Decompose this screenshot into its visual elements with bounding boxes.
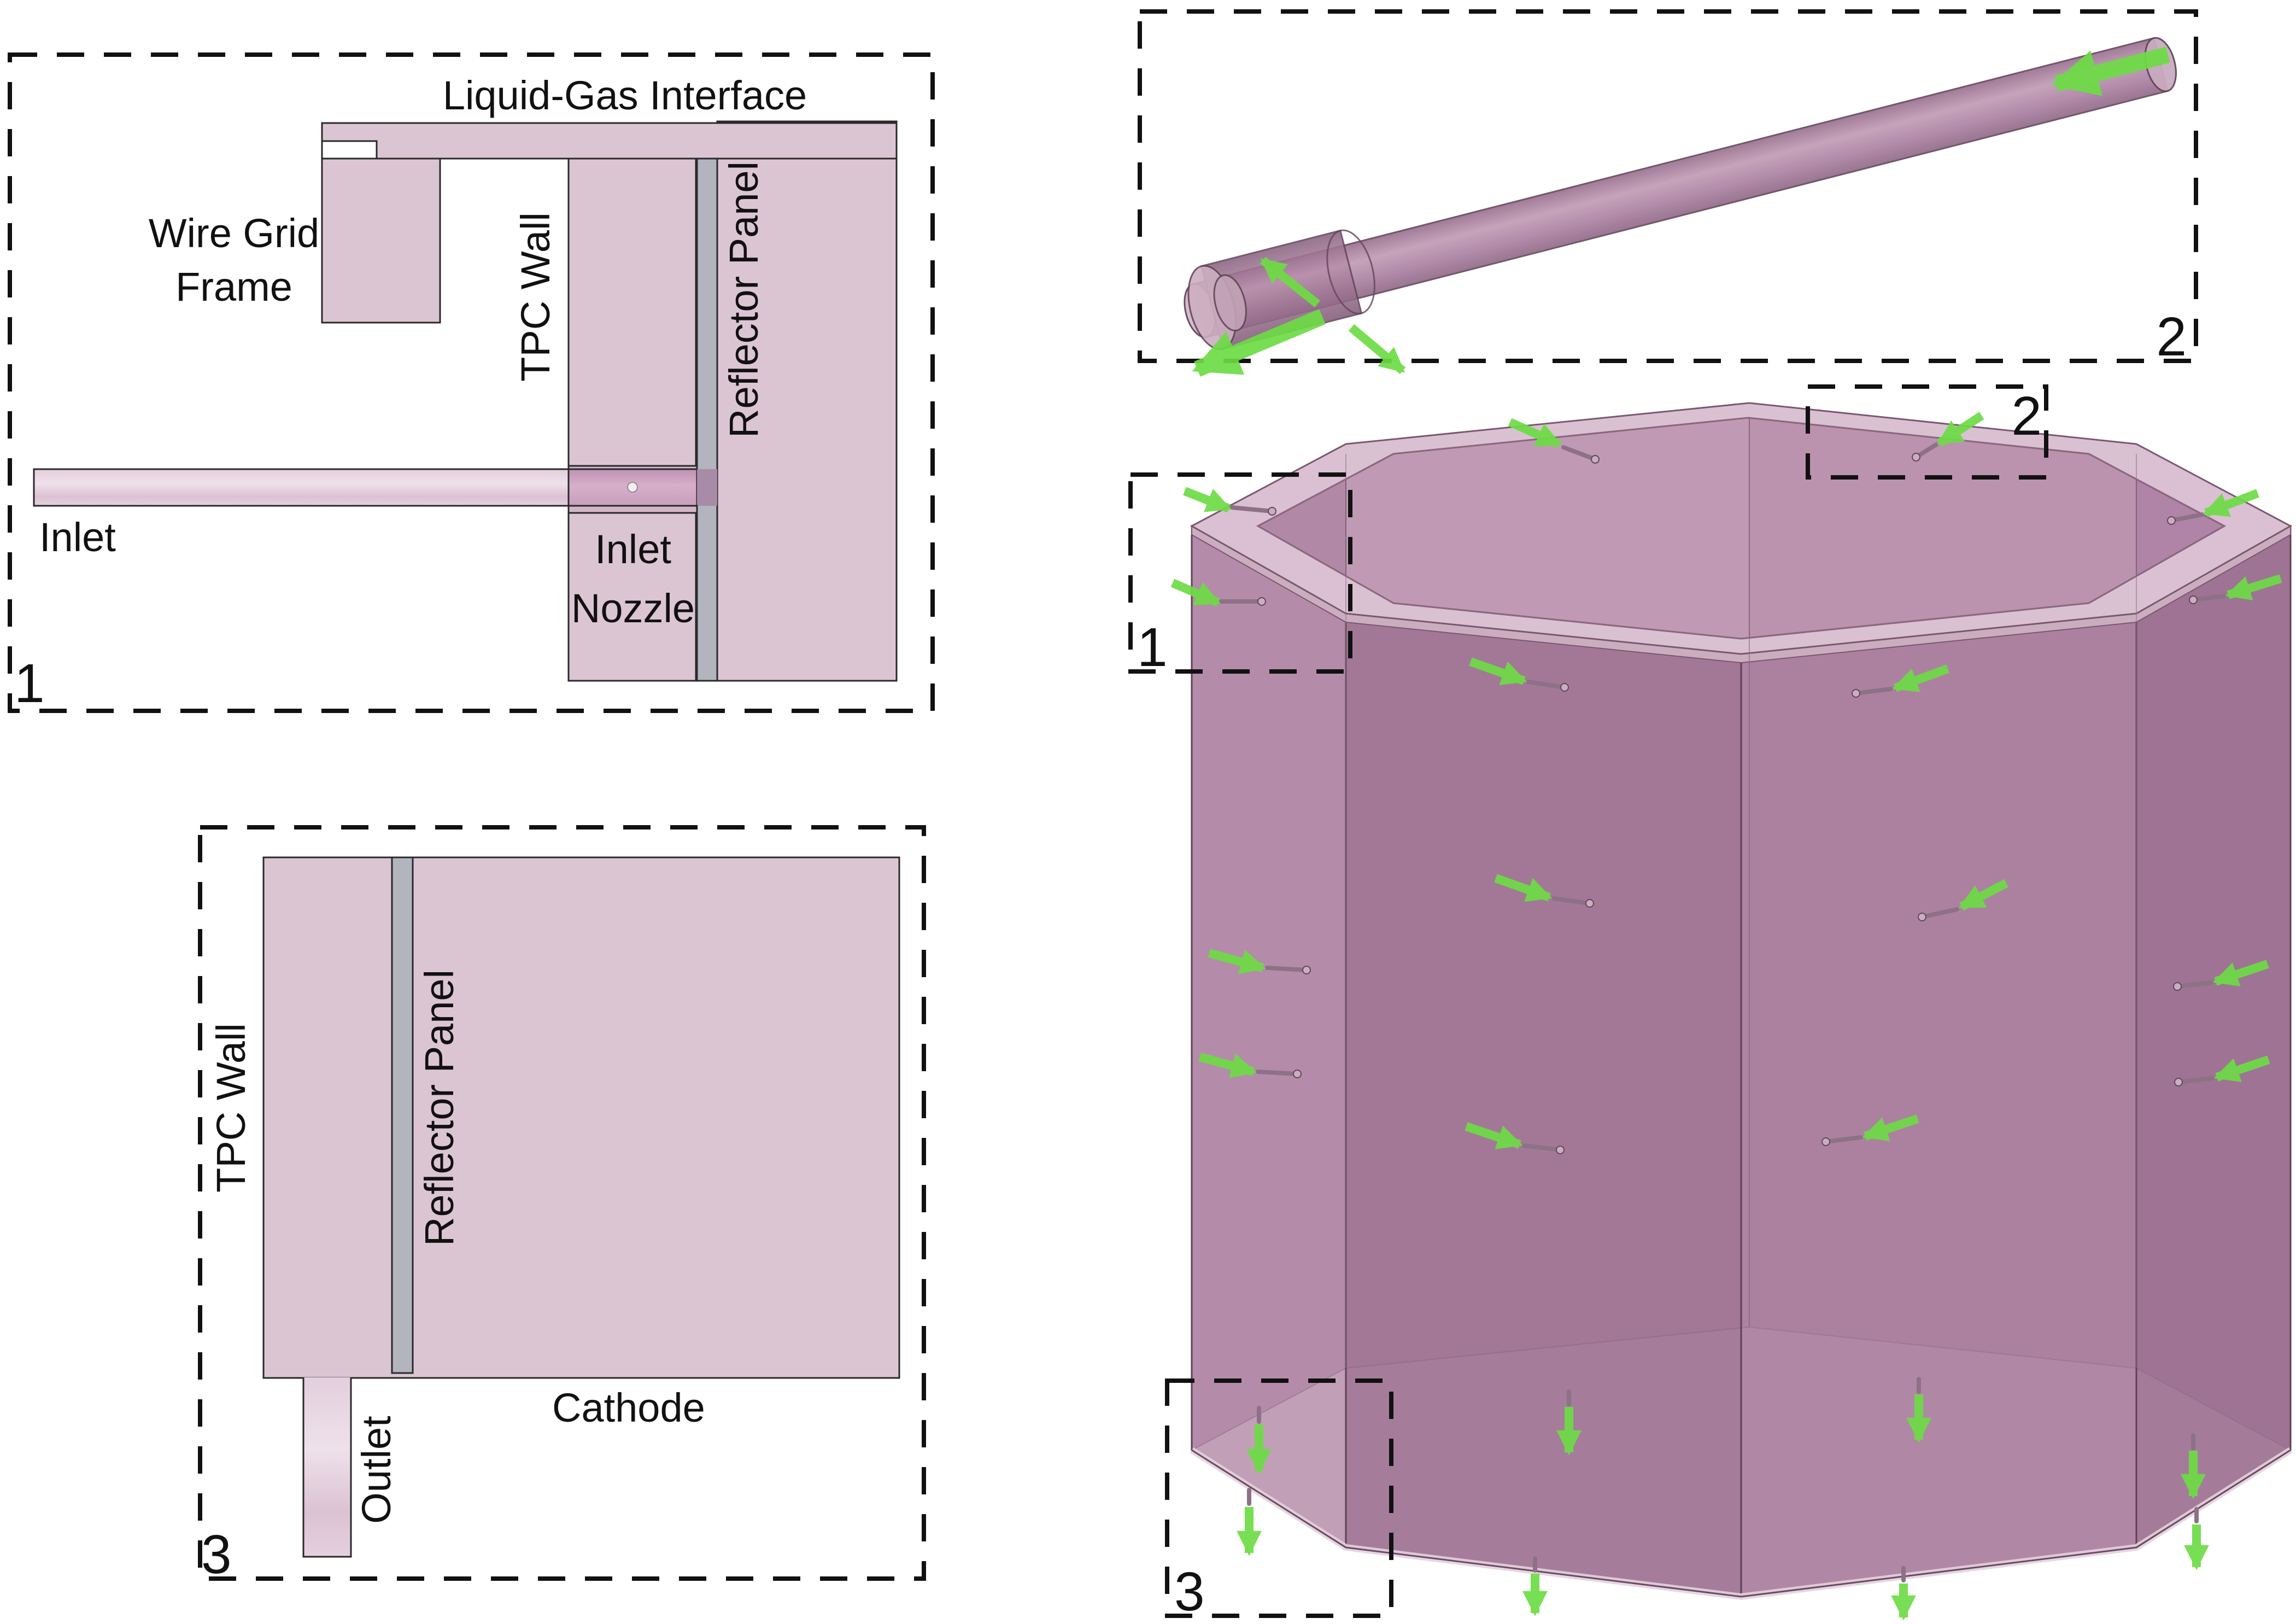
wire-grid-frame-notch [322,141,377,159]
panel-1-inlet-cross-section: Liquid-Gas Interface Wire Grid Frame TPC… [10,55,933,714]
label-inlet-nozzle-line1: Inlet [595,527,671,572]
callout-number-1: 1 [1137,617,1168,678]
label-tpc-wall-p1: TPC Wall [513,212,558,382]
panel-2-nozzle-detail: 2 [1140,11,2196,371]
label-inlet: Inlet [39,515,116,560]
panel-3-outlet-cross-section: TPC Wall Reflector Panel Outlet Cathode … [200,827,924,1585]
cathode-block [263,857,899,1378]
label-tpc-wall-p3: TPC Wall [208,1023,254,1193]
tpc-wall-column-upper [569,159,696,466]
front-wall-b-sw [1346,614,1741,1597]
label-liquid-gas-interface: Liquid-Gas Interface [443,73,807,118]
label-reflector-panel-p3: Reflector Panel [417,969,462,1246]
wire-grid-frame-block [322,159,440,323]
nozzle-pipe-3d [1175,20,2184,355]
panel-2-number: 2 [2156,306,2187,367]
outlet-tube [303,1377,351,1557]
panel-1-number: 1 [14,653,45,714]
front-wall-se-b [1741,614,2136,1597]
main-tpc-octagon-view: 1 2 3 [1131,385,2291,1622]
callout-number-3: 3 [1174,1561,1205,1622]
label-outlet: Outlet [354,1416,399,1524]
flow-arrow-side-down [1351,328,1403,371]
label-wire-grid-frame-line2: Frame [175,264,292,309]
callout-number-2: 2 [2011,385,2042,447]
tpc-geometry-figure: Liquid-Gas Interface Wire Grid Frame TPC… [0,0,2296,1624]
nozzle-orifice-dot [628,482,637,492]
inlet-nozzle-through-reflector [697,469,717,506]
nozzle-flange-bottom [569,506,697,513]
front-wall-sw-l [1192,526,1346,1547]
inlet-pipe [34,469,569,506]
label-reflector-panel-p1: Reflector Panel [721,161,766,438]
label-inlet-nozzle-line2: Nozzle [571,586,695,631]
reflector-panel-strip-p3 [392,857,413,1373]
reflector-panel-strip [697,131,717,681]
panel-3-number: 3 [201,1524,232,1585]
label-wire-grid-frame-line1: Wire Grid [149,211,319,256]
front-wall-r-se [2136,526,2291,1547]
liquid-gas-interface-bar [322,123,897,159]
label-cathode: Cathode [552,1385,705,1430]
